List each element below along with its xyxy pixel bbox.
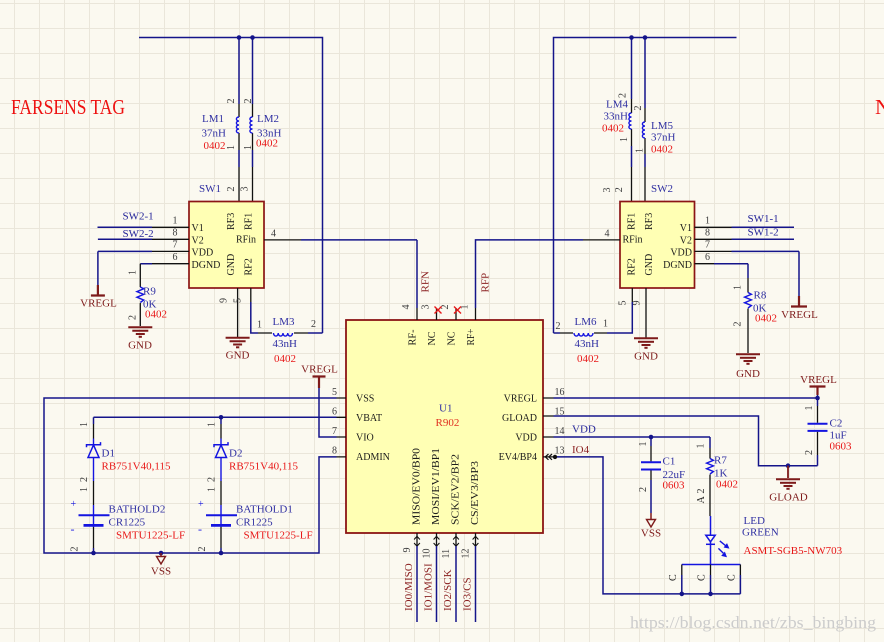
svg-text:D2: D2 bbox=[229, 448, 242, 460]
svg-text:R902: R902 bbox=[436, 417, 460, 429]
svg-text:2: 2 bbox=[804, 450, 815, 455]
svg-text:9: 9 bbox=[632, 301, 643, 306]
svg-text:SW2-2: SW2-2 bbox=[123, 228, 154, 240]
svg-text:4: 4 bbox=[401, 305, 412, 310]
svg-text:6: 6 bbox=[173, 252, 178, 263]
svg-text:10: 10 bbox=[422, 549, 433, 559]
svg-text:6: 6 bbox=[705, 252, 710, 263]
svg-text:SW1-1: SW1-1 bbox=[748, 213, 779, 225]
svg-text:BATHOLD1: BATHOLD1 bbox=[236, 504, 293, 516]
svg-text:+: + bbox=[198, 499, 204, 510]
svg-text:2: 2 bbox=[79, 477, 90, 482]
svg-text:N: N bbox=[875, 95, 884, 119]
svg-text:GND: GND bbox=[128, 340, 152, 352]
svg-text:SW1-2: SW1-2 bbox=[748, 227, 779, 239]
svg-text:C1: C1 bbox=[663, 456, 676, 468]
svg-text:0402: 0402 bbox=[716, 479, 738, 491]
svg-text:2: 2 bbox=[197, 547, 208, 552]
svg-text:V2: V2 bbox=[192, 236, 204, 247]
svg-text:14: 14 bbox=[555, 426, 565, 437]
svg-text:3: 3 bbox=[602, 188, 613, 193]
svg-text:37nH: 37nH bbox=[202, 128, 227, 140]
svg-text:-: - bbox=[198, 522, 202, 536]
svg-text:GREEN: GREEN bbox=[742, 527, 779, 539]
svg-text:GLOAD: GLOAD bbox=[502, 413, 537, 424]
svg-text:ADMIN: ADMIN bbox=[356, 452, 390, 463]
svg-text:16: 16 bbox=[555, 387, 565, 398]
svg-text:RFN: RFN bbox=[420, 271, 432, 292]
svg-text:1: 1 bbox=[603, 319, 608, 330]
svg-text:RF2: RF2 bbox=[244, 258, 255, 275]
svg-text:5: 5 bbox=[233, 298, 244, 303]
svg-text:8: 8 bbox=[332, 446, 337, 457]
svg-text:R7: R7 bbox=[714, 455, 727, 467]
svg-text:IO3/CS: IO3/CS bbox=[462, 577, 474, 611]
svg-text:IO2/SCK: IO2/SCK bbox=[442, 569, 454, 611]
svg-text:SW1: SW1 bbox=[199, 183, 221, 195]
svg-text:MOSI/EV1/BP1: MOSI/EV1/BP1 bbox=[431, 448, 442, 525]
svg-text:VREGL: VREGL bbox=[800, 374, 837, 386]
svg-text:VDD: VDD bbox=[192, 248, 214, 259]
svg-text:LM2: LM2 bbox=[257, 113, 279, 125]
svg-text:2: 2 bbox=[556, 321, 561, 332]
svg-text:1: 1 bbox=[79, 487, 90, 492]
svg-text:GND: GND bbox=[644, 254, 655, 276]
svg-text:DGND: DGND bbox=[663, 260, 692, 271]
svg-text:C: C bbox=[697, 574, 708, 581]
svg-text:VREGL: VREGL bbox=[504, 394, 537, 405]
svg-text:IO1/MOSI: IO1/MOSI bbox=[423, 563, 435, 611]
svg-text:1: 1 bbox=[733, 285, 744, 290]
svg-text:43nH: 43nH bbox=[575, 338, 600, 350]
svg-text:1: 1 bbox=[207, 487, 218, 492]
svg-text:ASMT-SGB5-NW703: ASMT-SGB5-NW703 bbox=[744, 545, 843, 557]
svg-text:8: 8 bbox=[173, 228, 178, 239]
svg-text:2: 2 bbox=[226, 187, 237, 192]
svg-text:A: A bbox=[696, 496, 707, 504]
svg-text:37nH: 37nH bbox=[651, 132, 676, 144]
svg-text:LM4: LM4 bbox=[606, 99, 629, 111]
svg-text:8: 8 bbox=[705, 228, 710, 239]
svg-text:SW2-1: SW2-1 bbox=[123, 211, 154, 223]
svg-text:1: 1 bbox=[207, 422, 218, 427]
svg-text:1: 1 bbox=[635, 148, 646, 153]
svg-text:7: 7 bbox=[705, 240, 710, 251]
svg-text:GND: GND bbox=[226, 254, 237, 276]
svg-text:0402: 0402 bbox=[651, 144, 673, 156]
svg-text:2: 2 bbox=[638, 487, 649, 492]
svg-text:4: 4 bbox=[271, 228, 276, 239]
svg-text:RFin: RFin bbox=[236, 235, 256, 246]
svg-text:https://blog.csdn.net/zbs_bing: https://blog.csdn.net/zbs_bingbing bbox=[630, 613, 877, 632]
svg-text:VBAT: VBAT bbox=[356, 413, 382, 424]
svg-text:2: 2 bbox=[311, 319, 316, 330]
svg-text:0402: 0402 bbox=[145, 309, 167, 321]
svg-text:V2: V2 bbox=[680, 236, 692, 247]
svg-text:7: 7 bbox=[332, 426, 337, 437]
svg-text:1: 1 bbox=[243, 145, 254, 150]
svg-text:EV4/BP4: EV4/BP4 bbox=[499, 452, 537, 463]
svg-text:GND: GND bbox=[736, 368, 760, 380]
svg-text:C: C bbox=[727, 574, 738, 581]
svg-text:GND: GND bbox=[634, 351, 658, 363]
svg-text:0603: 0603 bbox=[830, 441, 853, 453]
svg-text:GND: GND bbox=[226, 350, 250, 362]
svg-text:IO4: IO4 bbox=[572, 444, 590, 456]
svg-text:VDD: VDD bbox=[670, 248, 692, 259]
svg-text:VDD: VDD bbox=[572, 424, 596, 436]
svg-text:RB751V40,115: RB751V40,115 bbox=[229, 461, 298, 473]
svg-text:VSS: VSS bbox=[356, 394, 374, 405]
svg-text:2: 2 bbox=[128, 315, 139, 320]
svg-text:SW2: SW2 bbox=[651, 183, 673, 195]
svg-text:BATHOLD2: BATHOLD2 bbox=[109, 504, 166, 516]
svg-text:2: 2 bbox=[614, 187, 625, 192]
svg-text:43nH: 43nH bbox=[273, 338, 298, 350]
svg-text:0402: 0402 bbox=[274, 353, 296, 365]
svg-text:NC: NC bbox=[427, 331, 438, 345]
svg-text:VSS: VSS bbox=[151, 566, 171, 578]
svg-text:0402: 0402 bbox=[256, 137, 278, 149]
svg-text:2: 2 bbox=[226, 99, 237, 104]
svg-text:C: C bbox=[668, 574, 679, 581]
svg-text:RF-: RF- bbox=[408, 330, 419, 346]
svg-text:RF1: RF1 bbox=[627, 213, 638, 230]
svg-text:VREGL: VREGL bbox=[781, 309, 818, 321]
svg-text:7: 7 bbox=[173, 240, 178, 251]
svg-text:VREGL: VREGL bbox=[301, 364, 338, 376]
svg-text:D1: D1 bbox=[102, 448, 115, 460]
svg-text:4: 4 bbox=[605, 229, 610, 240]
svg-text:RF+: RF+ bbox=[466, 328, 477, 345]
svg-text:9: 9 bbox=[219, 298, 230, 303]
svg-text:+: + bbox=[71, 499, 77, 510]
svg-text:CS/EV3/BP3: CS/EV3/BP3 bbox=[470, 461, 481, 525]
svg-text:V1: V1 bbox=[192, 223, 204, 234]
svg-text:0402: 0402 bbox=[577, 353, 599, 365]
svg-text:33nH: 33nH bbox=[604, 111, 629, 123]
svg-text:MISO/EV0/BP0: MISO/EV0/BP0 bbox=[412, 448, 423, 525]
svg-text:1: 1 bbox=[79, 422, 90, 427]
svg-text:1: 1 bbox=[705, 216, 710, 227]
svg-text:FARSENS TAG: FARSENS TAG bbox=[11, 95, 125, 119]
svg-text:-: - bbox=[71, 522, 75, 536]
svg-text:RF3: RF3 bbox=[226, 213, 237, 230]
svg-text:VSS: VSS bbox=[641, 528, 661, 540]
svg-text:0402: 0402 bbox=[602, 123, 624, 135]
svg-text:DGND: DGND bbox=[192, 260, 221, 271]
svg-text:3: 3 bbox=[240, 187, 251, 192]
svg-text:12: 12 bbox=[461, 549, 472, 559]
svg-text:2: 2 bbox=[696, 489, 707, 494]
svg-text:LM1: LM1 bbox=[202, 113, 224, 125]
svg-text:13: 13 bbox=[555, 446, 565, 457]
svg-text:RFin: RFin bbox=[623, 235, 643, 246]
svg-text:5: 5 bbox=[332, 387, 337, 398]
svg-text:1: 1 bbox=[257, 320, 262, 331]
svg-text:CR1225: CR1225 bbox=[236, 517, 273, 529]
svg-text:1: 1 bbox=[696, 444, 707, 449]
svg-text:SCK/EV2/BP2: SCK/EV2/BP2 bbox=[451, 454, 462, 525]
svg-text:LM5: LM5 bbox=[651, 120, 674, 132]
svg-text:6: 6 bbox=[332, 407, 337, 418]
svg-text:1: 1 bbox=[619, 137, 630, 142]
svg-text:U1: U1 bbox=[439, 403, 452, 415]
svg-text:LM6: LM6 bbox=[575, 316, 598, 328]
svg-text:LM3: LM3 bbox=[273, 316, 296, 328]
svg-text:SMTU1225-LF: SMTU1225-LF bbox=[116, 530, 185, 542]
svg-text:1: 1 bbox=[173, 216, 178, 227]
svg-text:LED: LED bbox=[744, 515, 765, 527]
svg-text:0402: 0402 bbox=[755, 313, 777, 325]
svg-text:5: 5 bbox=[618, 301, 629, 306]
svg-text:0402: 0402 bbox=[204, 140, 226, 152]
svg-text:2: 2 bbox=[733, 322, 744, 327]
svg-text:1: 1 bbox=[128, 270, 139, 275]
svg-text:2: 2 bbox=[618, 93, 629, 98]
svg-text:VDD: VDD bbox=[515, 433, 537, 444]
svg-text:RB751V40,115: RB751V40,115 bbox=[102, 461, 171, 473]
svg-text:RF3: RF3 bbox=[644, 213, 655, 230]
svg-text:2: 2 bbox=[633, 106, 644, 111]
svg-text:V1: V1 bbox=[680, 223, 692, 234]
svg-text:SMTU1225-LF: SMTU1225-LF bbox=[244, 530, 313, 542]
svg-text:1: 1 bbox=[638, 442, 649, 447]
svg-text:RF2: RF2 bbox=[627, 258, 638, 275]
svg-text:VIO: VIO bbox=[356, 433, 374, 444]
svg-text:2: 2 bbox=[70, 547, 81, 552]
svg-text:3: 3 bbox=[421, 305, 432, 310]
svg-text:2: 2 bbox=[243, 99, 254, 104]
svg-text:11: 11 bbox=[441, 549, 452, 559]
svg-text:0603: 0603 bbox=[663, 480, 686, 492]
svg-text:C2: C2 bbox=[830, 418, 843, 430]
svg-text:RFP: RFP bbox=[480, 273, 492, 293]
svg-text:RF1: RF1 bbox=[244, 213, 255, 230]
svg-text:R8: R8 bbox=[754, 290, 767, 302]
svg-text:VREGL: VREGL bbox=[80, 298, 117, 310]
svg-text:CR1225: CR1225 bbox=[109, 517, 146, 529]
svg-text:NC: NC bbox=[447, 331, 458, 345]
svg-text:2: 2 bbox=[207, 477, 218, 482]
svg-text:GLOAD: GLOAD bbox=[769, 492, 808, 504]
svg-text:1: 1 bbox=[804, 406, 815, 411]
svg-text:1: 1 bbox=[226, 145, 237, 150]
svg-text:9: 9 bbox=[402, 548, 413, 553]
svg-text:IO0/MISO: IO0/MISO bbox=[403, 563, 415, 611]
svg-text:R9: R9 bbox=[143, 286, 156, 298]
